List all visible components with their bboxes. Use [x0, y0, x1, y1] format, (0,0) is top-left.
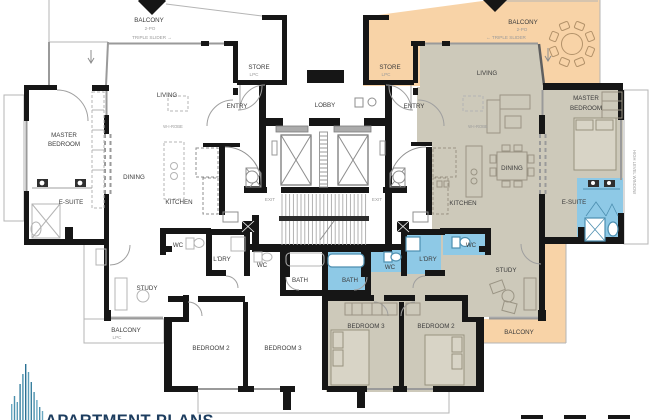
svg-text:KITCHEN: KITCHEN: [449, 200, 476, 207]
svg-text:DINING: DINING: [501, 165, 523, 172]
svg-text:W-I-ROBE: W-I-ROBE: [163, 124, 183, 129]
svg-text:STUDY: STUDY: [496, 267, 517, 274]
svg-text:BEDROOM 2: BEDROOM 2: [192, 345, 230, 352]
svg-text:W-I-ROBE: W-I-ROBE: [468, 124, 488, 129]
svg-text:BALCONY: BALCONY: [134, 17, 164, 24]
svg-text:STORE: STORE: [248, 64, 269, 71]
svg-text:HIGH LEVEL WINDOW: HIGH LEVEL WINDOW: [632, 150, 637, 194]
svg-text:LIVING: LIVING: [477, 70, 497, 77]
svg-text:LPC: LPC: [250, 72, 260, 77]
svg-text:LPC: LPC: [113, 335, 123, 340]
svg-text:EXIT: EXIT: [372, 197, 382, 202]
svg-text:BALCONY: BALCONY: [504, 329, 534, 336]
svg-text:2-PO: 2-PO: [145, 26, 156, 31]
svg-text:BALCONY: BALCONY: [111, 327, 141, 334]
svg-text:BEDROOM 2: BEDROOM 2: [417, 323, 455, 330]
svg-text:← TRIPLE SLIDER: ← TRIPLE SLIDER: [486, 35, 526, 40]
svg-text:E-SUITE: E-SUITE: [59, 199, 83, 206]
svg-text:L'DRY: L'DRY: [419, 256, 437, 263]
svg-text:WC: WC: [257, 262, 268, 269]
svg-text:L'DRY: L'DRY: [213, 256, 231, 263]
svg-text:ENTRY: ENTRY: [404, 103, 425, 110]
svg-text:2-PO: 2-PO: [517, 27, 528, 32]
svg-text:KITCHEN: KITCHEN: [165, 199, 192, 206]
svg-text:E-SUITE: E-SUITE: [562, 199, 586, 206]
svg-text:BATH: BATH: [342, 277, 358, 284]
svg-text:MASTER: MASTER: [573, 95, 599, 102]
svg-text:LPC: LPC: [382, 72, 392, 77]
svg-text:MASTER: MASTER: [51, 132, 77, 139]
svg-text:WC: WC: [385, 264, 396, 271]
svg-text:STORE: STORE: [379, 64, 400, 71]
svg-text:DINING: DINING: [123, 174, 145, 181]
svg-text:BALCONY: BALCONY: [508, 19, 538, 26]
svg-text:WC: WC: [173, 242, 184, 249]
svg-text:BEDROOM 3: BEDROOM 3: [264, 345, 302, 352]
svg-text:EXIT: EXIT: [265, 197, 275, 202]
svg-text:APARTMENT PLANS: APARTMENT PLANS: [45, 412, 214, 420]
svg-text:BATH: BATH: [292, 277, 308, 284]
svg-text:WC: WC: [466, 242, 477, 249]
svg-text:TRIPLE SLIDER →: TRIPLE SLIDER →: [132, 35, 172, 40]
svg-text:STUDY: STUDY: [137, 285, 158, 292]
svg-text:BEDROOM: BEDROOM: [48, 141, 80, 148]
svg-text:LIVING: LIVING: [157, 92, 177, 99]
svg-text:BEDROOM: BEDROOM: [570, 105, 602, 112]
svg-text:ENTRY: ENTRY: [227, 103, 248, 110]
svg-text:LOBBY: LOBBY: [315, 102, 336, 109]
svg-text:BEDROOM 3: BEDROOM 3: [347, 323, 385, 330]
